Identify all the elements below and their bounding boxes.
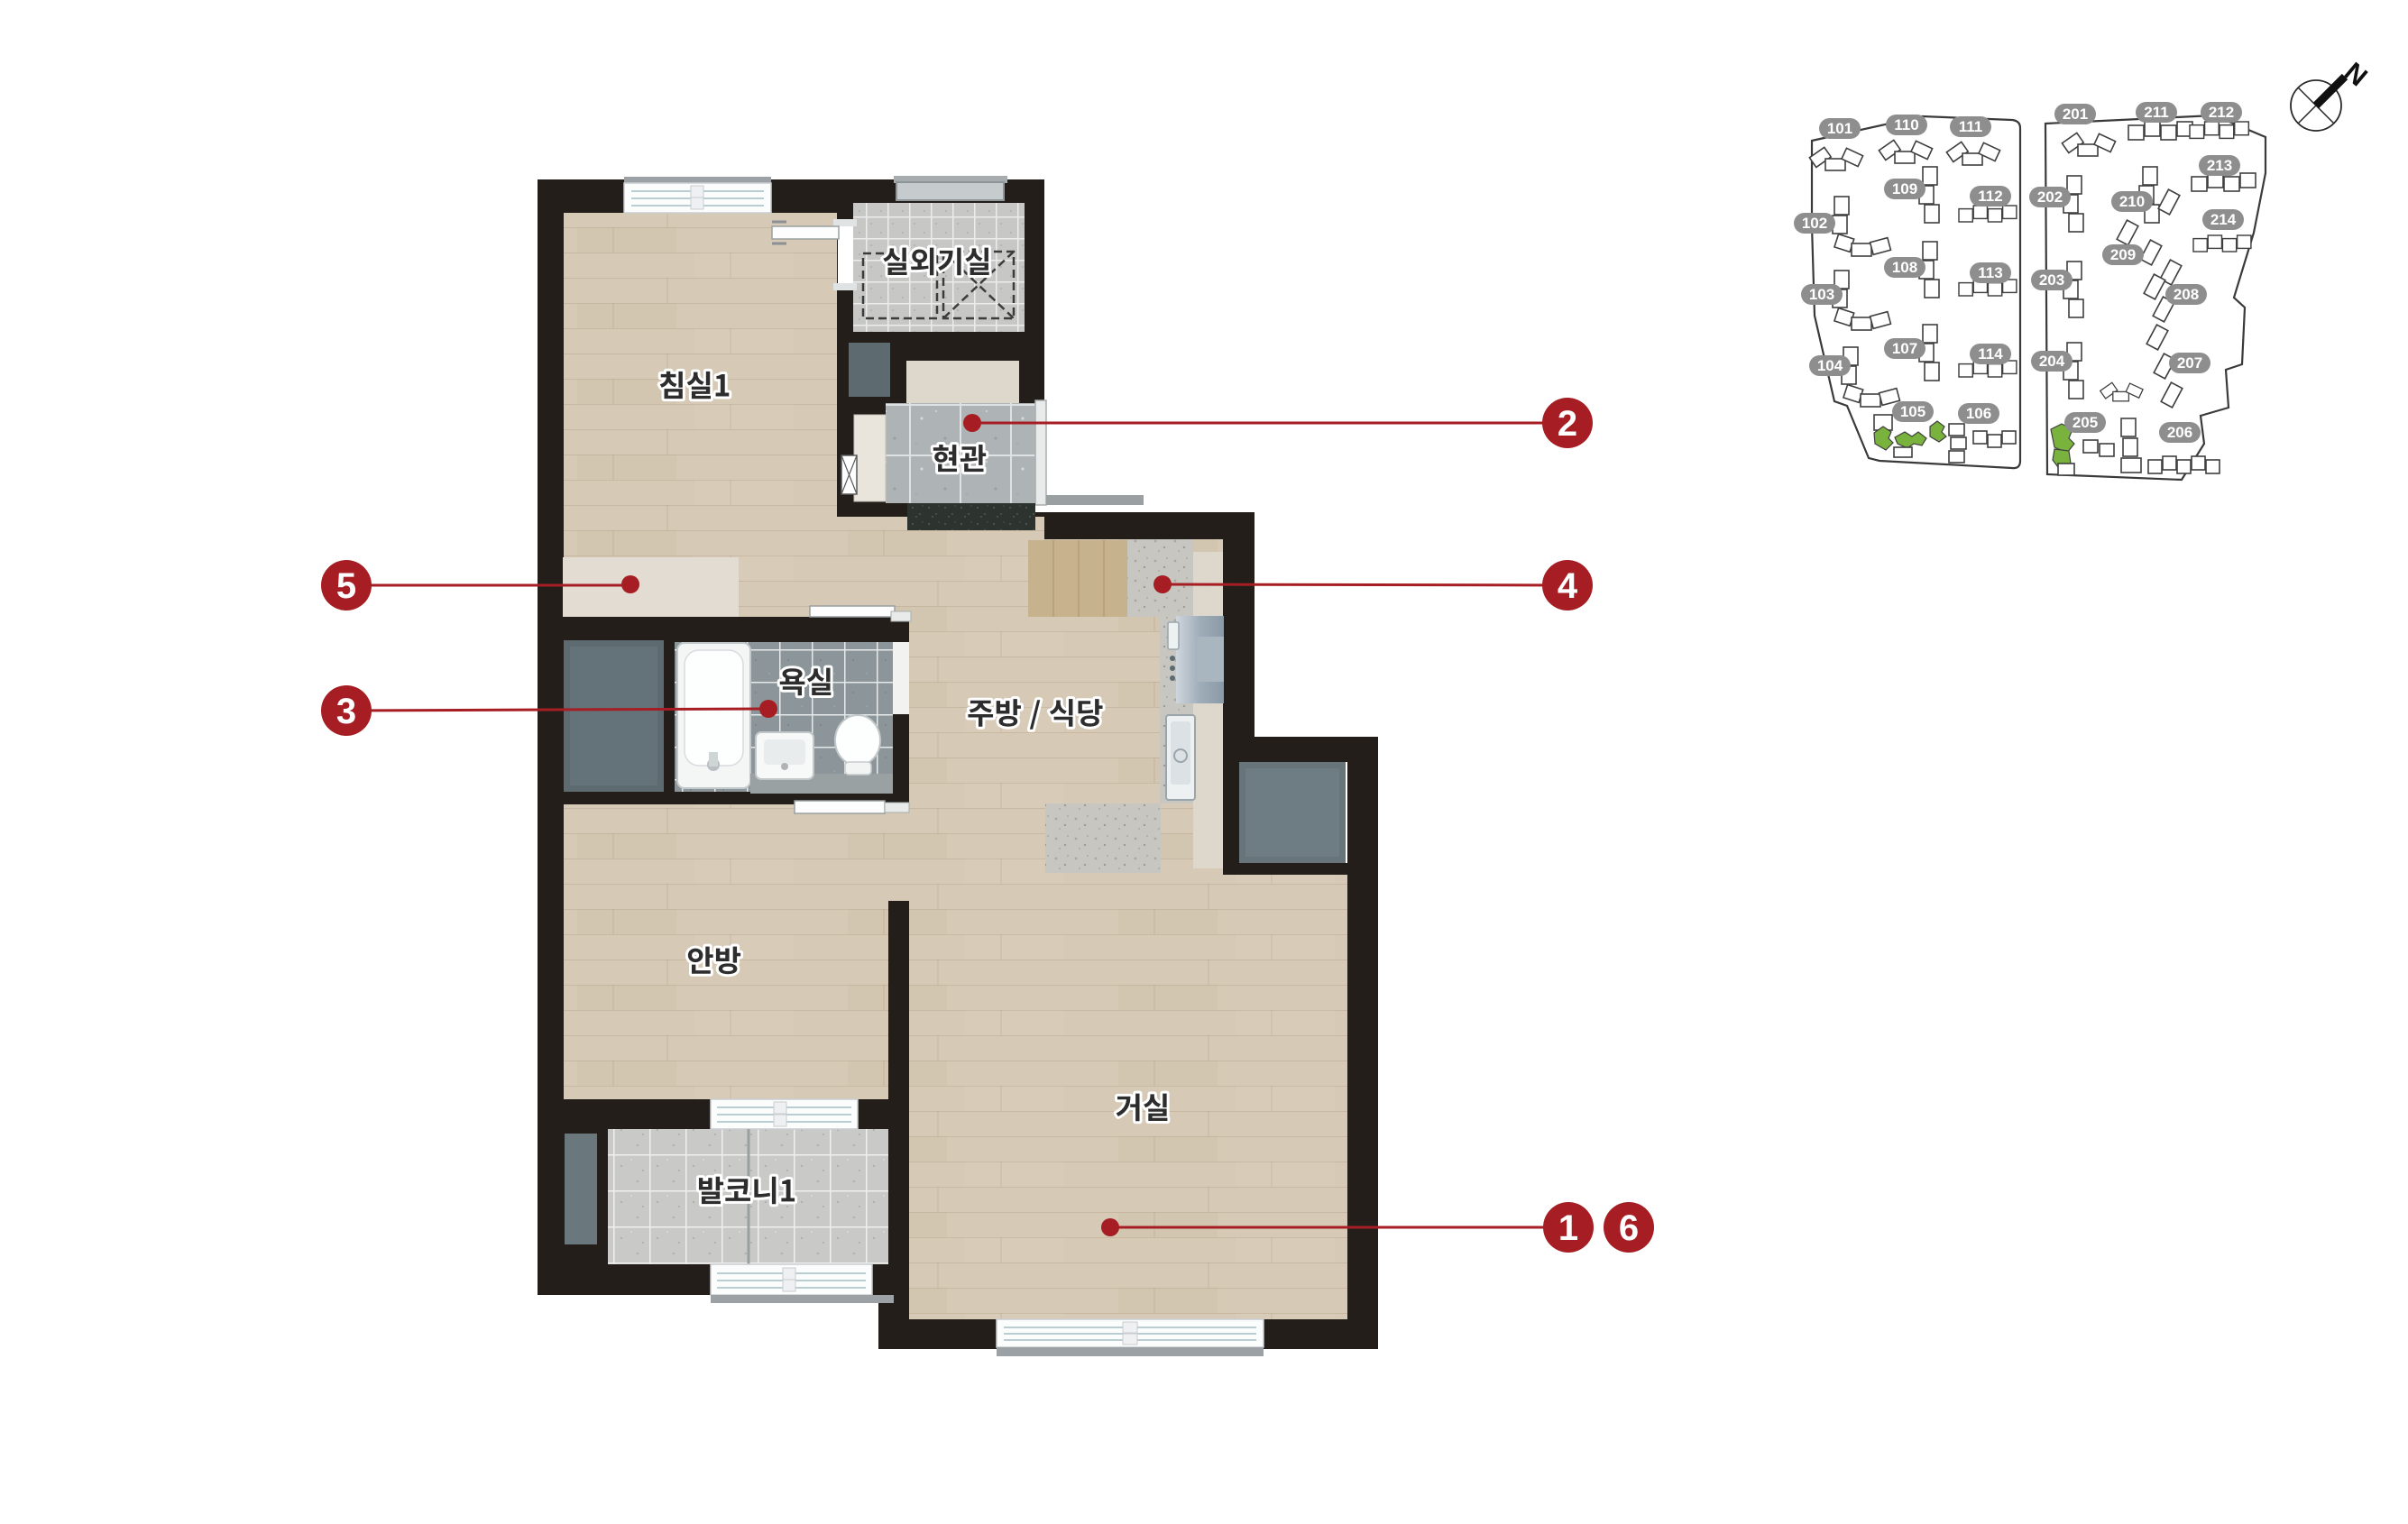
svg-text:3: 3 — [336, 692, 356, 731]
svg-text:101: 101 — [1827, 120, 1852, 137]
svg-text:213: 213 — [2207, 157, 2232, 174]
svg-text:113: 113 — [1978, 264, 2002, 281]
svg-text:108: 108 — [1892, 259, 1917, 276]
svg-text:202: 202 — [2037, 188, 2063, 206]
svg-text:6: 6 — [1619, 1208, 1639, 1248]
svg-text:207: 207 — [2177, 354, 2202, 372]
svg-text:103: 103 — [1809, 286, 1834, 303]
svg-text:208: 208 — [2174, 286, 2199, 303]
svg-text:204: 204 — [2039, 353, 2065, 370]
svg-text:214: 214 — [2210, 211, 2237, 228]
svg-text:104: 104 — [1817, 357, 1843, 374]
svg-text:105: 105 — [1900, 403, 1925, 420]
svg-text:5: 5 — [336, 566, 356, 606]
svg-text:201: 201 — [2063, 106, 2088, 123]
svg-text:114: 114 — [1978, 345, 2003, 363]
svg-text:102: 102 — [1802, 215, 1827, 232]
svg-text:109: 109 — [1892, 180, 1917, 197]
svg-text:210: 210 — [2119, 193, 2145, 210]
svg-text:110: 110 — [1894, 116, 1918, 133]
svg-text:205: 205 — [2073, 414, 2098, 431]
svg-text:209: 209 — [2110, 246, 2136, 263]
svg-text:112: 112 — [1978, 188, 2002, 205]
svg-text:106: 106 — [1966, 405, 1991, 422]
svg-text:107: 107 — [1892, 340, 1917, 357]
svg-text:111: 111 — [1959, 118, 1983, 135]
svg-text:206: 206 — [2167, 424, 2192, 441]
svg-text:212: 212 — [2209, 104, 2234, 121]
svg-text:203: 203 — [2039, 271, 2064, 289]
svg-text:1: 1 — [1558, 1208, 1578, 1248]
svg-text:2: 2 — [1558, 404, 1577, 444]
svg-text:4: 4 — [1558, 566, 1578, 606]
svg-text:211: 211 — [2144, 104, 2168, 121]
